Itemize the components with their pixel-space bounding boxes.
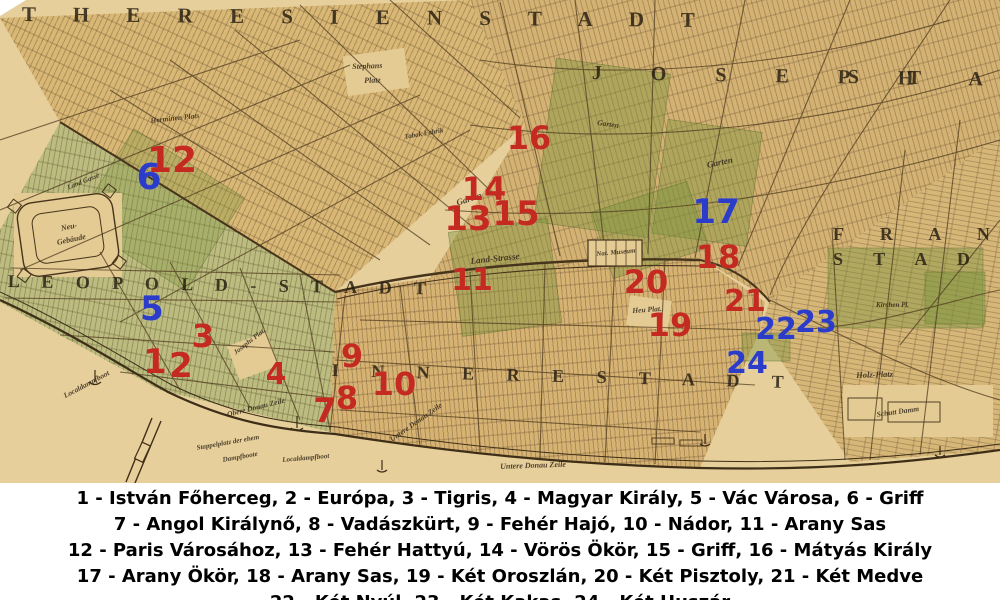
map-marker-3-red: 3 [192, 320, 214, 352]
legend-line-3: 12 - Paris Városához, 13 - Fehér Hattyú,… [0, 538, 1000, 564]
map-marker-16-red: 16 [507, 122, 552, 154]
street-label: Holz-Platz [856, 369, 893, 380]
map-marker-5-blue: 5 [140, 292, 164, 326]
street-label: Platz [364, 75, 381, 85]
street-label: Stephans [352, 61, 383, 71]
map-marker-23-blue: 23 [795, 308, 837, 338]
historic-pest-map: T H E R E S I E N S T A D TJ O S E P HS … [0, 0, 1000, 483]
map-marker-15-red: 15 [492, 197, 539, 231]
map-marker-4-red: 4 [266, 360, 287, 390]
legend-line-1: 1 - István Főherceg, 2 - Európa, 3 - Tig… [0, 486, 1000, 512]
street-label: Kirchen Pl. [876, 301, 909, 309]
map-marker-11-red: 11 [451, 266, 493, 296]
map-marker-17-blue: 17 [692, 195, 739, 229]
map-marker-20-red: 20 [624, 266, 669, 298]
district-label-franz-stadt: S T A D T [833, 249, 1000, 270]
legend-line-4: 17 - Arany Ökör, 18 - Arany Sas, 19 - Ké… [0, 564, 1000, 590]
map-marker-18-red: 18 [696, 241, 741, 273]
map-marker-7-red: 7 [313, 394, 337, 428]
map-marker-10-red: 10 [372, 368, 417, 400]
map-marker-22-blue: 22 [755, 315, 797, 345]
map-marker-2-red: 2 [169, 349, 193, 383]
map-marker-1-red: 1 [143, 345, 167, 379]
screenshot: T H E R E S I E N S T A D TJ O S E P HS … [0, 0, 1000, 600]
legend-line-2: 7 - Angol Királynő, 8 - Vadászkürt, 9 - … [0, 512, 1000, 538]
map-marker-9-red: 9 [341, 340, 363, 372]
map-marker-19-red: 19 [648, 309, 693, 341]
bridge [126, 418, 161, 483]
district-label-franz: F R A N Z [833, 224, 1000, 245]
map-marker-12-red: 12 [147, 143, 197, 179]
legend-line-5-clipped: 22 - Két Nyúl, 23 - Két Kakas, 24 - Két … [0, 590, 1000, 600]
legend-caption: 1 - István Főherceg, 2 - Európa, 3 - Tig… [0, 483, 1000, 600]
map-marker-24-blue: 24 [726, 349, 768, 379]
map-marker-8-red: 8 [336, 382, 358, 414]
